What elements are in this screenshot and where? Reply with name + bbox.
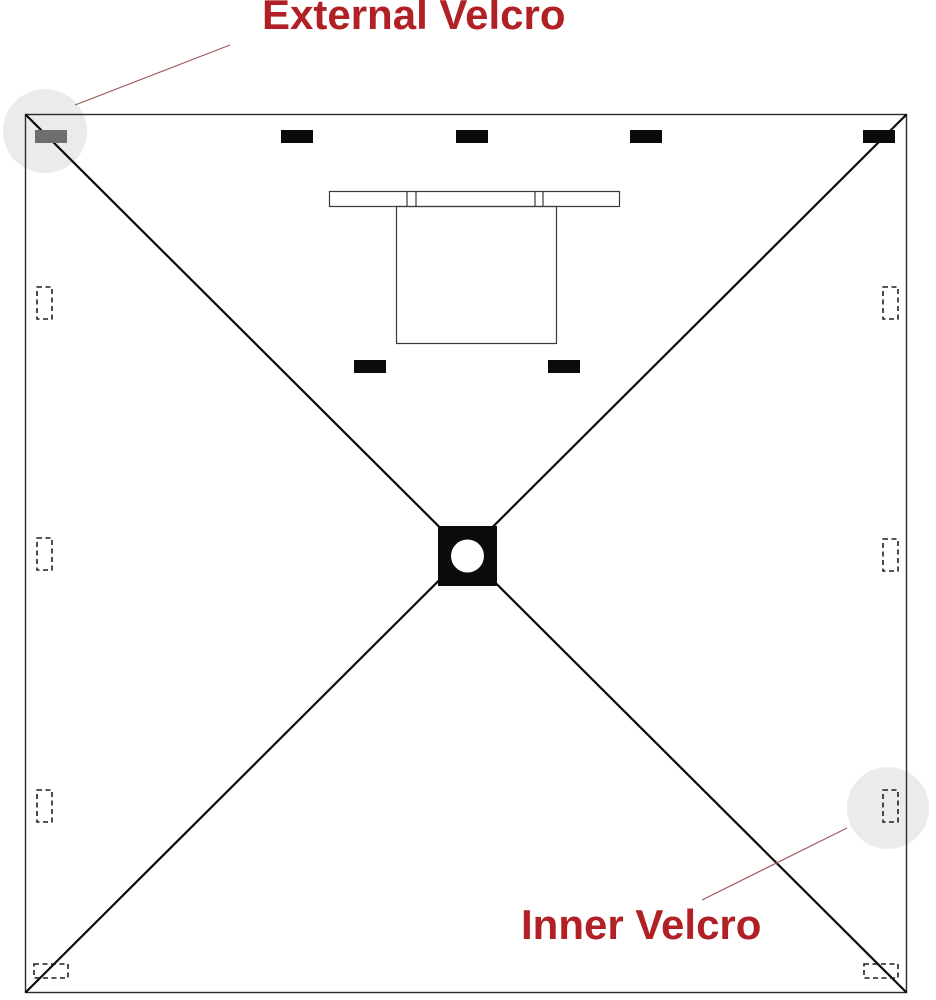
- inner-velcro-patch: [37, 538, 52, 570]
- canopy-diagram: External Velcro Inner Velcro: [0, 0, 936, 1000]
- center-hub-hole: [451, 540, 484, 573]
- highlight-circle-inner: [847, 767, 929, 849]
- inner-callout-line: [702, 828, 847, 900]
- external-velcro-strip: [456, 130, 488, 143]
- inner-velcro-label: Inner Velcro: [521, 904, 761, 946]
- vent-panel: [397, 207, 557, 344]
- external-velcro-strip-highlighted: [35, 130, 67, 143]
- external-velcro-strip: [354, 360, 386, 373]
- inner-velcro-patch: [883, 539, 898, 571]
- external-velcro-label: External Velcro: [262, 0, 566, 36]
- external-callout-line: [75, 45, 230, 105]
- external-velcro-strip: [630, 130, 662, 143]
- inner-velcro-patch: [37, 790, 52, 822]
- external-velcro-strip: [863, 130, 895, 143]
- vent-top-bar: [330, 192, 620, 207]
- inner-velcro-patch: [883, 287, 898, 319]
- diagram-canvas: [0, 0, 936, 1000]
- external-velcro-strip: [548, 360, 580, 373]
- external-velcro-strip: [281, 130, 313, 143]
- inner-velcro-patch: [37, 287, 52, 319]
